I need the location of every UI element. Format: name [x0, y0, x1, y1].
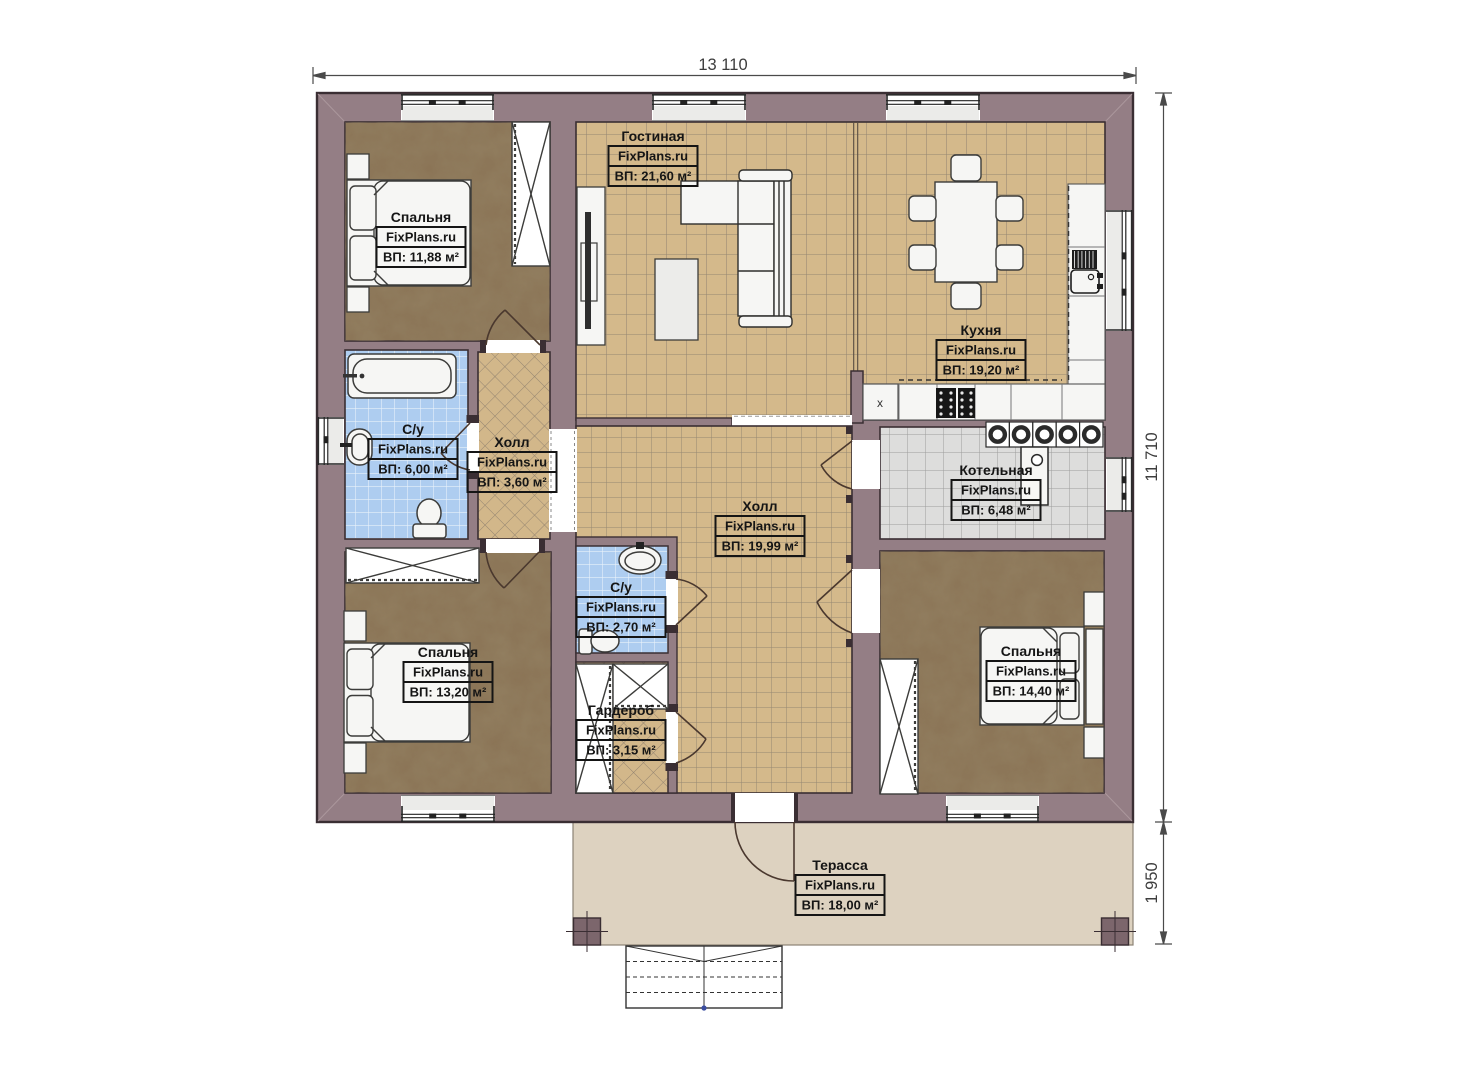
svg-text:FixPlans.ru: FixPlans.ru: [996, 664, 1066, 679]
svg-text:Холл: Холл: [494, 434, 529, 450]
svg-text:ВП: 14,40 м²: ВП: 14,40 м²: [993, 684, 1070, 699]
svg-text:FixPlans.ru: FixPlans.ru: [378, 442, 448, 457]
svg-text:FixPlans.ru: FixPlans.ru: [586, 600, 656, 615]
svg-text:Спальня: Спальня: [1001, 643, 1061, 659]
svg-text:Спальня: Спальня: [391, 209, 451, 225]
svg-text:С/у: С/у: [402, 421, 424, 437]
svg-text:Котельная: Котельная: [959, 462, 1032, 478]
svg-text:FixPlans.ru: FixPlans.ru: [946, 343, 1016, 358]
svg-text:11 710: 11 710: [1143, 432, 1161, 481]
svg-text:FixPlans.ru: FixPlans.ru: [386, 230, 456, 245]
svg-text:ВП: 11,88 м²: ВП: 11,88 м²: [383, 250, 460, 265]
svg-text:FixPlans.ru: FixPlans.ru: [586, 723, 656, 738]
svg-text:FixPlans.ru: FixPlans.ru: [961, 483, 1031, 498]
svg-text:13 110: 13 110: [698, 56, 747, 74]
svg-text:ВП: 3,15 м²: ВП: 3,15 м²: [586, 743, 656, 758]
svg-text:FixPlans.ru: FixPlans.ru: [618, 149, 688, 164]
svg-text:Холл: Холл: [742, 498, 777, 514]
svg-text:С/у: С/у: [610, 579, 632, 595]
svg-text:ВП: 13,20 м²: ВП: 13,20 м²: [410, 685, 487, 700]
svg-text:ВП: 6,00 м²: ВП: 6,00 м²: [378, 462, 448, 477]
svg-text:ВП: 21,60 м²: ВП: 21,60 м²: [615, 169, 692, 184]
svg-text:ВП: 2,70 м²: ВП: 2,70 м²: [586, 620, 656, 635]
svg-text:Кухня: Кухня: [961, 322, 1002, 338]
svg-text:FixPlans.ru: FixPlans.ru: [725, 519, 795, 534]
svg-text:ВП: 3,60 м²: ВП: 3,60 м²: [477, 475, 547, 490]
svg-text:FixPlans.ru: FixPlans.ru: [413, 665, 483, 680]
svg-text:FixPlans.ru: FixPlans.ru: [805, 878, 875, 893]
svg-text:Гардероб: Гардероб: [588, 702, 655, 718]
svg-text:ВП: 19,99 м²: ВП: 19,99 м²: [722, 539, 799, 554]
svg-text:ВП: 6,48 м²: ВП: 6,48 м²: [961, 503, 1031, 518]
svg-text:ВП: 19,20 м²: ВП: 19,20 м²: [943, 363, 1020, 378]
svg-text:ВП: 18,00 м²: ВП: 18,00 м²: [802, 898, 879, 913]
svg-text:FixPlans.ru: FixPlans.ru: [477, 455, 547, 470]
svg-text:Терасса: Терасса: [812, 857, 868, 873]
svg-text:Спальня: Спальня: [418, 644, 478, 660]
svg-text:Гостиная: Гостиная: [621, 128, 684, 144]
svg-text:x: x: [877, 396, 883, 410]
svg-text:1 950: 1 950: [1143, 862, 1161, 903]
